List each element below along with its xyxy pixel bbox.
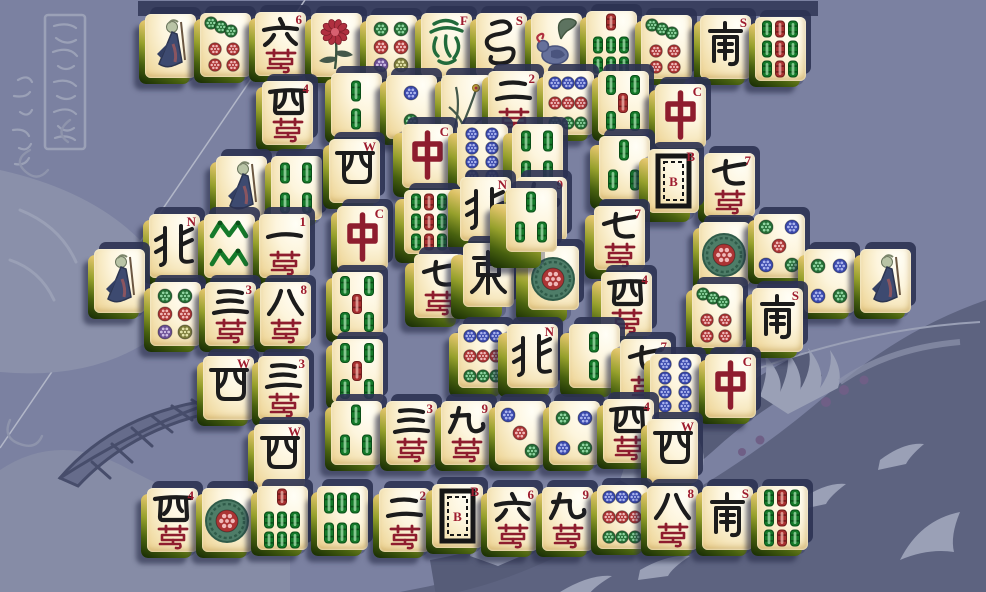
tile-bamboo-3[interactable] — [331, 401, 382, 465]
tile-flower-old-man[interactable] — [145, 14, 196, 78]
tile-face — [598, 71, 649, 135]
tile-index-label: S — [516, 14, 523, 28]
tile-index-label: 4 — [644, 400, 651, 414]
tile-character-4[interactable]: 4 — [262, 81, 313, 145]
tile-face: C — [655, 84, 706, 148]
tile-bamboo-5[interactable] — [332, 272, 383, 336]
tile-face: 6 — [487, 487, 538, 551]
tile-index-label: 3 — [246, 283, 253, 297]
tile-face — [549, 401, 600, 465]
tile-face — [204, 214, 255, 278]
tile-index-label: S — [742, 487, 749, 501]
tile-white-dragon[interactable]: B B — [432, 484, 483, 548]
tile-character-6[interactable]: 6 — [487, 487, 538, 551]
tile-face: 2 — [379, 488, 430, 552]
tile-face — [755, 17, 806, 81]
tile-face: 8 — [260, 282, 311, 346]
tile-face — [200, 13, 251, 77]
tile-flower-old-man[interactable] — [860, 249, 911, 313]
tile-south-wind[interactable]: S — [752, 288, 803, 352]
tile-circles-4[interactable] — [804, 249, 855, 313]
tile-bamboo-8[interactable] — [204, 214, 255, 278]
tile-face — [506, 188, 557, 252]
tile-index-label: 4 — [188, 489, 195, 503]
tile-character-7[interactable]: 7 — [594, 206, 645, 270]
tile-bamboo-7[interactable] — [257, 486, 308, 550]
tile-face: 9 — [441, 401, 492, 465]
tile-character-3[interactable]: 3 — [386, 401, 437, 465]
tile-index-label: S — [740, 16, 747, 30]
tile-index-label: W — [288, 425, 301, 439]
tile-index-label: W — [237, 357, 250, 371]
tile-index-label: S — [792, 289, 799, 303]
tile-red-dragon[interactable]: C — [402, 124, 453, 188]
tile-index-label: 8 — [301, 283, 308, 297]
tile-character-9[interactable]: 9 — [441, 401, 492, 465]
tile-face — [332, 272, 383, 336]
tile-index-label: B — [686, 150, 695, 164]
tile-index-label: 7 — [745, 154, 752, 168]
tile-character-4[interactable]: 4 — [147, 488, 198, 552]
tile-character-1[interactable]: 1 — [259, 214, 310, 278]
tile-circles-7[interactable] — [200, 13, 251, 77]
tile-west-wind[interactable]: W — [203, 356, 254, 420]
tile-circles-3[interactable] — [495, 401, 546, 465]
tile-index-label: C — [375, 207, 384, 221]
tile-circles-7[interactable] — [692, 284, 743, 348]
tile-index-label: 3 — [427, 402, 434, 416]
tile-character-6[interactable]: 6 — [255, 12, 306, 76]
tile-character-3[interactable]: 3 — [258, 356, 309, 420]
tile-index-label: C — [693, 85, 702, 99]
tile-south-wind[interactable]: S — [702, 486, 753, 550]
tile-face: 3 — [258, 356, 309, 420]
tile-face: S — [752, 288, 803, 352]
tile-face: B B — [648, 149, 699, 213]
tile-face: 3 — [386, 401, 437, 465]
tile-face: 4 — [147, 488, 198, 552]
tile-face — [150, 282, 201, 346]
tile-face — [757, 486, 808, 550]
tile-character-9[interactable]: 9 — [542, 487, 593, 551]
tile-face — [495, 401, 546, 465]
tile-face — [331, 73, 382, 137]
tile-bamboo-5[interactable] — [598, 71, 649, 135]
tile-index-label: F — [460, 14, 468, 28]
tile-index-label: 4 — [303, 82, 310, 96]
tile-face: C — [705, 354, 756, 418]
tile-face: N — [507, 324, 558, 388]
tile-face: 9 — [542, 487, 593, 551]
tile-face: B B — [432, 484, 483, 548]
tile-face: W — [329, 139, 380, 203]
svg-text:B: B — [669, 174, 678, 189]
tile-index-label: 6 — [296, 13, 303, 27]
tile-face: 7 — [704, 153, 755, 217]
tile-character-2[interactable]: 2 — [379, 488, 430, 552]
tile-circles-4[interactable] — [549, 401, 600, 465]
tile-index-label: B — [470, 485, 479, 499]
tile-face — [317, 486, 368, 550]
tile-north-wind[interactable]: N — [507, 324, 558, 388]
game-stage: 6 F S — [0, 0, 986, 592]
tile-south-wind[interactable]: S — [700, 15, 751, 79]
tile-bamboo-9[interactable] — [755, 17, 806, 81]
tile-face: S — [702, 486, 753, 550]
tile-face — [257, 486, 308, 550]
tile-index-label: 7 — [635, 207, 642, 221]
tile-bamboo-3[interactable] — [506, 188, 557, 252]
tile-face — [145, 14, 196, 78]
tile-index-label: N — [187, 215, 196, 229]
tile-red-dragon[interactable]: C — [655, 84, 706, 148]
tile-north-wind[interactable]: N — [149, 214, 200, 278]
tile-face: 4 — [262, 81, 313, 145]
tile-circles-1[interactable] — [202, 488, 253, 552]
tile-white-dragon[interactable]: B B — [648, 149, 699, 213]
tile-index-label: 9 — [482, 402, 489, 416]
tile-face — [804, 249, 855, 313]
tile-index-label: C — [743, 355, 752, 369]
tile-bamboo-6[interactable] — [317, 486, 368, 550]
tile-red-dragon[interactable]: C — [337, 206, 388, 270]
tile-index-label: 1 — [300, 215, 307, 229]
tile-index-label: 2 — [529, 72, 536, 86]
tile-character-8[interactable]: 8 — [260, 282, 311, 346]
tile-face: W — [647, 419, 698, 483]
tile-face — [94, 249, 145, 313]
tile-face: 8 — [647, 486, 698, 550]
tile-index-label: 9 — [583, 488, 590, 502]
tile-face: S — [700, 15, 751, 79]
tile-face: 6 — [255, 12, 306, 76]
tile-face — [860, 249, 911, 313]
tile-character-3[interactable]: 3 — [205, 282, 256, 346]
tile-flower-old-man[interactable] — [94, 249, 145, 313]
tile-red-dragon[interactable]: C — [705, 354, 756, 418]
mahjong-board: 6 F S — [0, 0, 986, 592]
tile-character-8[interactable]: 8 — [647, 486, 698, 550]
tile-west-wind[interactable]: W — [647, 419, 698, 483]
tile-character-7[interactable]: 7 — [704, 153, 755, 217]
tile-index-label: W — [363, 140, 376, 154]
tile-face: C — [337, 206, 388, 270]
tile-circles-6[interactable] — [150, 282, 201, 346]
tile-index-label: W — [681, 420, 694, 434]
svg-text:B: B — [453, 509, 462, 524]
tile-face: 1 — [259, 214, 310, 278]
tile-index-label: 8 — [688, 487, 695, 501]
tile-face — [202, 488, 253, 552]
tile-face — [692, 284, 743, 348]
tile-bamboo-9[interactable] — [757, 486, 808, 550]
tile-index-label: 6 — [528, 488, 535, 502]
tile-face: 7 — [594, 206, 645, 270]
tile-index-label: N — [545, 325, 554, 339]
tile-index-label: 3 — [299, 357, 306, 371]
tile-west-wind[interactable]: W — [329, 139, 380, 203]
tile-face: 3 — [205, 282, 256, 346]
tile-face: W — [203, 356, 254, 420]
tile-index-label: 4 — [642, 273, 649, 287]
tile-face — [331, 401, 382, 465]
tile-face: C — [402, 124, 453, 188]
tile-face: N — [149, 214, 200, 278]
tile-bamboo-2[interactable] — [331, 73, 382, 137]
